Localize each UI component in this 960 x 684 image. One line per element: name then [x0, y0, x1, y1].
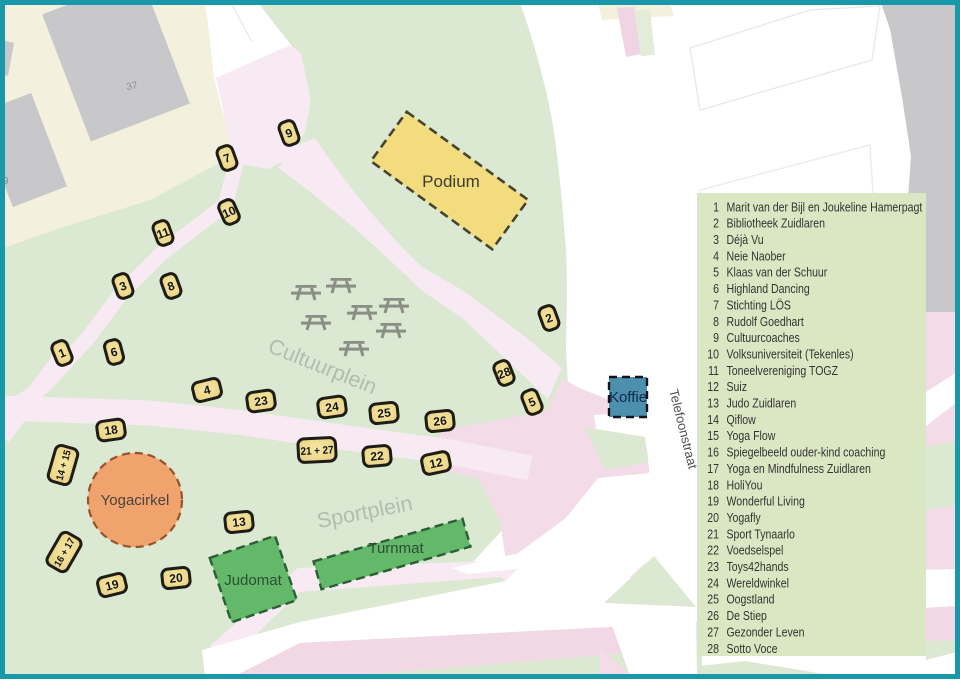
svg-text:Judo Zuidlaren: Judo Zuidlaren — [726, 395, 796, 410]
svg-text:9: 9 — [713, 330, 719, 345]
svg-text:24: 24 — [707, 575, 719, 590]
svg-text:26: 26 — [433, 414, 448, 429]
svg-text:23: 23 — [253, 393, 268, 409]
svg-text:13: 13 — [707, 395, 719, 410]
svg-text:15: 15 — [707, 428, 719, 443]
svg-text:10: 10 — [707, 346, 719, 361]
svg-text:8: 8 — [713, 314, 719, 329]
svg-text:Stichting LÖS: Stichting LÖS — [726, 297, 791, 312]
svg-text:2: 2 — [713, 216, 719, 231]
svg-text:Toneelvereniging TOGZ: Toneelvereniging TOGZ — [726, 363, 838, 378]
svg-text:21: 21 — [707, 526, 719, 541]
svg-text:Wonderful Living: Wonderful Living — [726, 493, 804, 508]
svg-text:18: 18 — [707, 477, 719, 492]
svg-text:Marit van der Bijl en Joukelin: Marit van der Bijl en Joukeline Hamerpag… — [726, 199, 922, 214]
svg-text:Klaas van der Schuur: Klaas van der Schuur — [726, 265, 827, 280]
svg-text:Yoga en Mindfulness Zuidlaren: Yoga en Mindfulness Zuidlaren — [726, 461, 870, 476]
svg-text:19: 19 — [707, 493, 719, 508]
svg-text:Turnmat: Turnmat — [368, 540, 424, 557]
svg-text:22: 22 — [707, 543, 719, 558]
svg-text:Spiegelbeeld ouder-kind coachi: Spiegelbeeld ouder-kind coaching — [726, 444, 885, 459]
svg-text:Sport Tynaarlo: Sport Tynaarlo — [726, 526, 795, 541]
svg-text:27: 27 — [707, 624, 719, 639]
svg-text:Qiflow: Qiflow — [726, 412, 756, 427]
svg-text:Rudolf Goedhart: Rudolf Goedhart — [726, 314, 804, 329]
svg-text:Yogafly: Yogafly — [726, 510, 760, 525]
svg-text:23: 23 — [707, 559, 719, 574]
svg-text:Oogstland: Oogstland — [726, 592, 774, 607]
svg-text:7: 7 — [713, 297, 719, 312]
svg-text:5: 5 — [713, 265, 719, 280]
svg-text:6: 6 — [713, 281, 719, 296]
svg-text:Judomat: Judomat — [224, 572, 282, 589]
svg-text:4: 4 — [713, 248, 719, 263]
svg-text:Cultuurcoaches: Cultuurcoaches — [726, 330, 799, 345]
svg-text:24: 24 — [324, 399, 339, 415]
svg-text:Voedselspel: Voedselspel — [726, 543, 783, 558]
svg-text:17: 17 — [707, 461, 719, 476]
svg-text:Yogacirkel: Yogacirkel — [101, 492, 170, 509]
svg-text:21 + 27: 21 + 27 — [300, 444, 334, 458]
svg-text:25: 25 — [707, 592, 719, 607]
svg-text:Volksuniversiteit (Tekenles): Volksuniversiteit (Tekenles) — [726, 346, 853, 361]
svg-text:De Stiep: De Stiep — [726, 608, 767, 623]
svg-text:Yoga Flow: Yoga Flow — [726, 428, 775, 443]
svg-text:Sotto Voce: Sotto Voce — [726, 641, 777, 656]
svg-text:28: 28 — [707, 641, 719, 656]
svg-text:Highland Dancing: Highland Dancing — [726, 281, 809, 296]
svg-text:HoliYou: HoliYou — [726, 477, 762, 492]
svg-text:18: 18 — [103, 422, 118, 438]
svg-text:20: 20 — [169, 571, 184, 586]
svg-text:26: 26 — [707, 608, 719, 623]
svg-text:25: 25 — [377, 406, 392, 421]
svg-text:Déjà Vu: Déjà Vu — [726, 232, 763, 247]
svg-text:1: 1 — [713, 199, 719, 214]
svg-text:16: 16 — [707, 444, 719, 459]
svg-text:20: 20 — [707, 510, 719, 525]
svg-text:12: 12 — [707, 379, 719, 394]
svg-text:Wereldwinkel: Wereldwinkel — [726, 575, 789, 590]
svg-text:22: 22 — [370, 449, 385, 464]
svg-text:11: 11 — [708, 363, 719, 378]
svg-text:Podium: Podium — [422, 172, 480, 191]
svg-text:Suiz: Suiz — [726, 379, 747, 394]
svg-text:14: 14 — [707, 412, 719, 427]
svg-text:13: 13 — [232, 515, 247, 530]
svg-text:3: 3 — [713, 232, 719, 247]
svg-text:Neie Naober: Neie Naober — [726, 248, 785, 263]
svg-text:Gezonder Leven: Gezonder Leven — [726, 624, 804, 639]
svg-text:Bibliotheek Zuidlaren: Bibliotheek Zuidlaren — [726, 216, 824, 231]
svg-text:Koffie: Koffie — [609, 389, 647, 406]
svg-text:Toys42hands: Toys42hands — [726, 559, 788, 574]
